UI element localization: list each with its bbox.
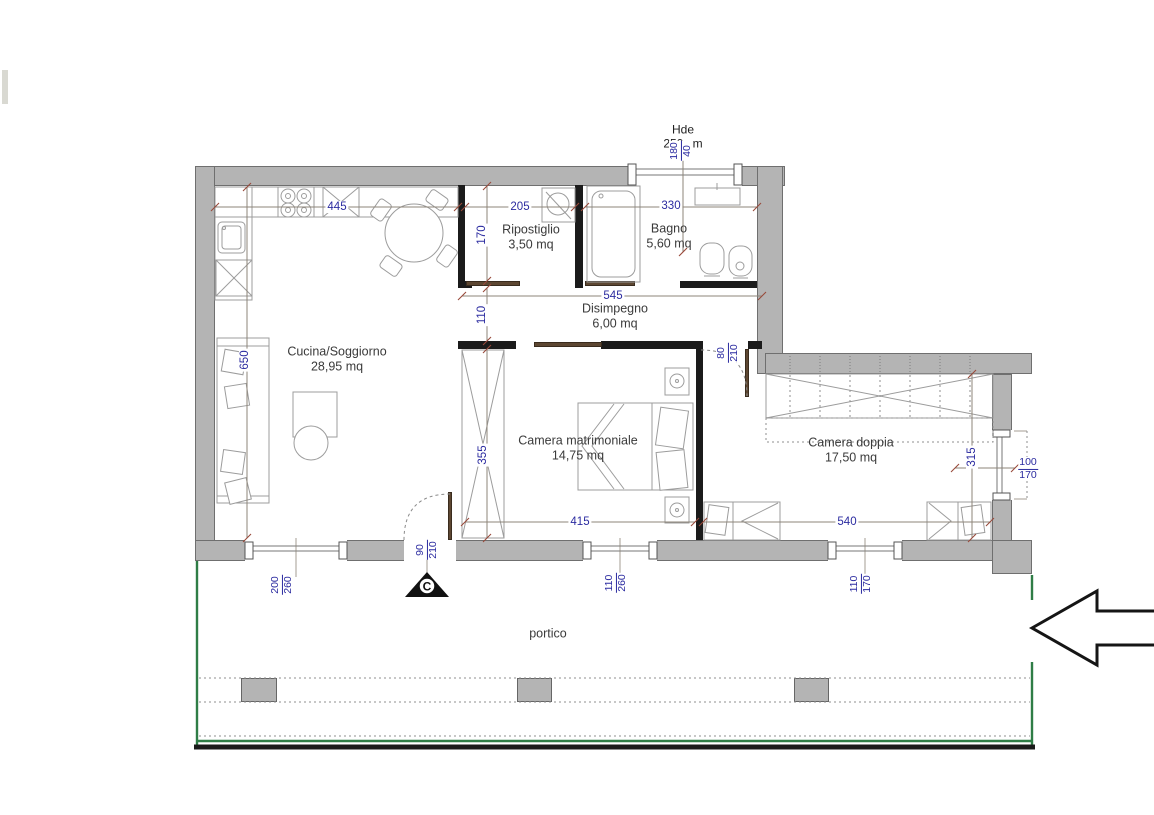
partition-ripostiglio-bagno (575, 185, 583, 288)
opening-height: 260 (283, 575, 295, 595)
room-label-disimpegno: Disimpegno 6,00 mq (582, 301, 648, 331)
portico-pillar-1 (241, 678, 277, 702)
window-center-size: 110 260 (604, 573, 628, 593)
room-area: 6,00 mq (582, 316, 648, 331)
top-window-size: 180 40 (669, 141, 693, 161)
section-circle (419, 578, 435, 594)
room-area: 3,50 mq (502, 237, 560, 252)
room-name: portico (529, 627, 567, 642)
partition-matrimoniale-doppia (696, 349, 703, 540)
floor-plan: C Cucina/Soggiorno 28,95 mq Ripostiglio … (0, 0, 1154, 815)
wall-doppia-top (765, 353, 1032, 374)
opening-width: 110 (604, 573, 617, 593)
opening-width: 200 (270, 575, 283, 595)
opening-width: 80 (716, 343, 729, 363)
window-east-opening (992, 430, 1013, 500)
opening-height: 40 (682, 141, 694, 161)
partition-disimpegno-left (458, 341, 516, 349)
dim-ripostiglio-depth: 170 (476, 223, 488, 246)
opening-width: 110 (849, 574, 862, 594)
partition-bagno-bottom (680, 281, 757, 288)
dim-cucina-width: 445 (325, 201, 348, 213)
opening-width: 90 (415, 540, 428, 560)
washing-machine (542, 188, 575, 222)
window-right-size: 110 170 (849, 574, 873, 594)
page-edge-artifact (2, 70, 8, 104)
room-label-camera-doppia: Camera doppia 17,50 mq (808, 435, 893, 465)
dim-matrimoniale-depth: 355 (477, 443, 489, 466)
opening-height: 210 (428, 540, 440, 560)
room-name: Bagno (646, 221, 691, 236)
dim-doppia-depth: 315 (966, 445, 978, 468)
room-area: 14,75 mq (518, 448, 637, 463)
room-name: Camera matrimoniale (518, 433, 637, 448)
note-line: Hde (663, 123, 702, 137)
dim-bagno-width: 330 (659, 200, 682, 212)
room-label-bagno: Bagno 5,60 mq (646, 221, 691, 251)
wall-exterior-left (195, 166, 215, 561)
ripostiglio-sliding-door (466, 281, 520, 286)
doppia-door-size: 80 210 (716, 343, 740, 363)
section-marker-letter: C (423, 580, 432, 594)
opening-height: 210 (729, 343, 741, 363)
window-left-opening (245, 540, 347, 561)
top-window-opening (628, 163, 742, 188)
wall-corner-bottom-right (992, 540, 1032, 574)
direction-arrow-icon (1032, 591, 1154, 665)
room-name: Cucina/Soggiorno (287, 344, 386, 359)
opening-height: 170 (862, 574, 874, 594)
dim-doppia-width: 540 (835, 516, 858, 528)
bagno-sliding-door (585, 281, 635, 286)
entrance-door-size: 90 210 (415, 540, 439, 560)
dim-disimpegno-depth: 110 (476, 304, 488, 326)
dim-matrimoniale-width: 415 (568, 516, 591, 528)
portico-pillar-2 (517, 678, 552, 702)
partition-cucina-ripostiglio (458, 185, 465, 281)
room-name: Camera doppia (808, 435, 893, 450)
opening-height: 260 (617, 573, 629, 593)
room-name: Disimpegno (582, 301, 648, 316)
room-area: 17,50 mq (808, 450, 893, 465)
dim-cucina-depth: 650 (239, 348, 251, 371)
room-label-portico: portico (529, 627, 567, 642)
room-label-ripostiglio: Ripostiglio 3,50 mq (502, 222, 560, 252)
section-triangle (405, 572, 449, 597)
entrance-door-leaf (448, 492, 452, 540)
window-east-size: 100 170 (1018, 457, 1038, 481)
dim-disimpegno-width: 545 (601, 290, 624, 302)
room-label-cucina: Cucina/Soggiorno 28,95 mq (287, 344, 386, 374)
portico-pillar-3 (794, 678, 829, 702)
window-center-opening (583, 540, 657, 561)
room-label-camera-matrimoniale: Camera matrimoniale 14,75 mq (518, 433, 637, 463)
partition-door-stub (748, 341, 762, 349)
opening-height: 170 (1018, 470, 1038, 482)
room-area: 5,60 mq (646, 236, 691, 251)
doppia-door-leaf (745, 349, 749, 397)
opening-width: 100 (1018, 457, 1038, 470)
section-marker: C (405, 556, 449, 597)
room-name: Ripostiglio (502, 222, 560, 237)
partition-disimpegno-right (601, 341, 703, 349)
room-area: 28,95 mq (287, 359, 386, 374)
window-left-size: 200 260 (270, 575, 294, 595)
window-right-opening (828, 540, 902, 561)
matrimoniale-sliding-door (534, 342, 602, 347)
dim-ripostiglio-width: 205 (508, 201, 531, 213)
opening-width: 180 (669, 141, 682, 161)
